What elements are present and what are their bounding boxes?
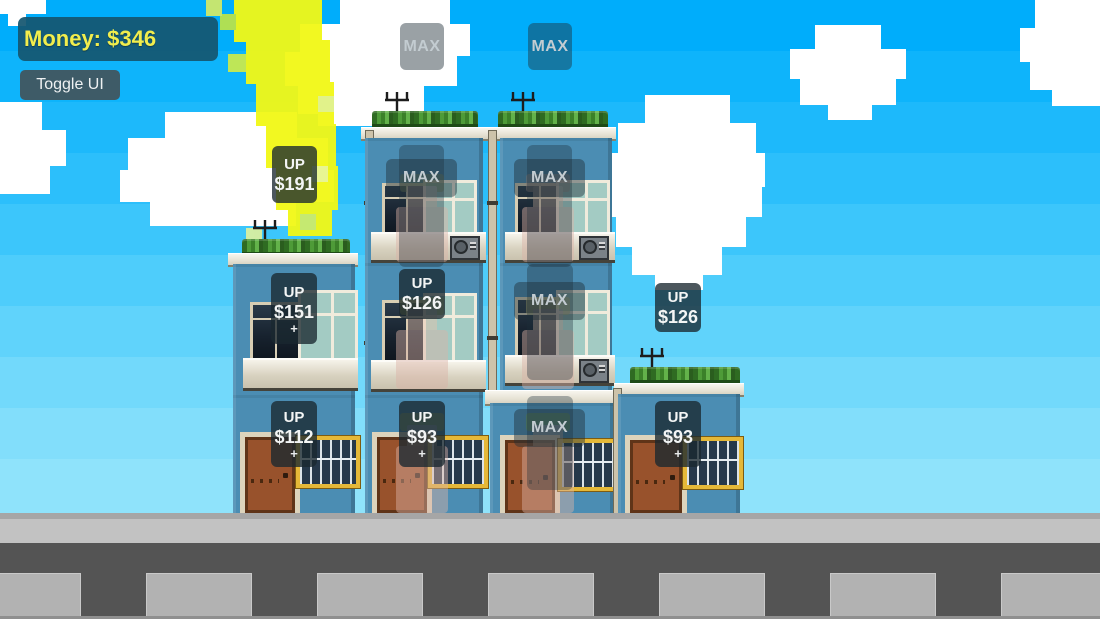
roof-garden [498, 111, 608, 127]
upgrade-button-col4-ground[interactable]: UP $93 + [655, 401, 701, 467]
max-slot-button-left: MAX [400, 23, 444, 70]
max-badge-col3-ground: MAX [514, 409, 585, 447]
upgrade-button-col2-ground[interactable]: UP $93 + [399, 401, 445, 467]
money-label: Money: $346 [24, 26, 156, 52]
max-badge-col2-floor3: MAX [386, 159, 457, 197]
ac-unit-icon [579, 236, 609, 260]
drainpipe [488, 130, 497, 394]
toggle-ui-button[interactable]: Toggle UI [20, 70, 120, 100]
upgrade-button-new-floor-left[interactable]: UP $191 [272, 146, 317, 203]
sidewalk [0, 519, 1100, 543]
door-studs [251, 479, 279, 483]
crosswalk-stripe [830, 573, 936, 617]
ac-unit-icon [579, 359, 609, 383]
crosswalk-stripe [659, 573, 765, 617]
crosswalk-stripe [1001, 573, 1100, 617]
crosswalk-stripe [146, 573, 252, 617]
crosswalk-stripe [488, 573, 594, 617]
door-knob [283, 473, 288, 478]
max-badge-col3-floor3: MAX [514, 159, 585, 197]
upgrade-button-col1-ground[interactable]: UP $112 + [271, 401, 317, 467]
toggle-ui-label: Toggle UI [36, 76, 104, 94]
max-slot-button-right: MAX [528, 23, 572, 70]
crosswalk-stripe [317, 573, 423, 617]
road [0, 543, 1100, 619]
balcony-ledge [243, 358, 358, 391]
roof-garden [372, 111, 478, 127]
ac-unit-icon [450, 236, 480, 260]
door-knob [670, 475, 675, 480]
upgrade-button-col2-floor2[interactable]: UP $126 [399, 269, 445, 319]
upgrade-button-new-floor-right[interactable]: UP $126 [655, 283, 701, 332]
money-panel: Money: $346 [18, 17, 218, 61]
game-viewport: MAX MAX UP $191 MAX MAX UP $151 + UP $12… [0, 0, 1100, 619]
upgrade-button-col1-floor2[interactable]: UP $151 + [271, 273, 317, 344]
door-studs [636, 480, 665, 484]
roof-garden [630, 367, 740, 383]
crosswalk-stripe [0, 573, 81, 617]
max-badge-col3-floor2: MAX [514, 282, 585, 320]
